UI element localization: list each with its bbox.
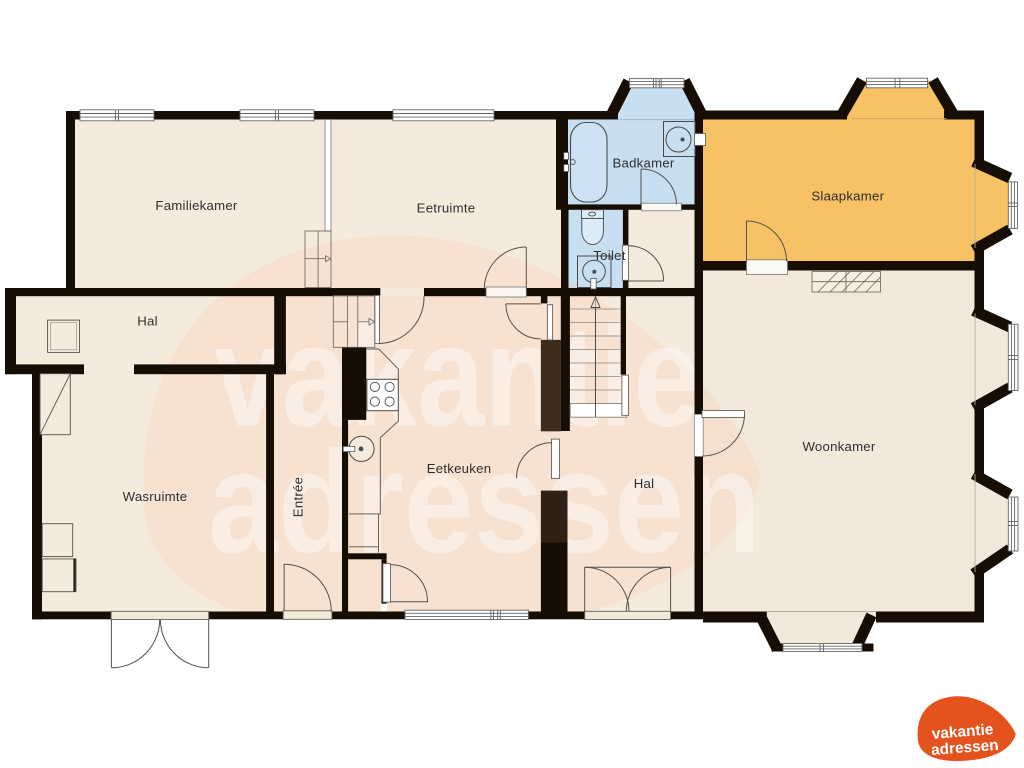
svg-text:Entrée: Entrée [291, 477, 306, 517]
svg-text:Hal: Hal [137, 314, 158, 329]
svg-text:Eetkeuken: Eetkeuken [427, 461, 492, 476]
svg-text:Eetruimte: Eetruimte [417, 201, 476, 216]
svg-text:Wasruimte: Wasruimte [123, 489, 188, 504]
svg-text:Toilet: Toilet [593, 248, 625, 263]
svg-text:Slaapkamer: Slaapkamer [811, 189, 884, 204]
svg-text:Woonkamer: Woonkamer [802, 439, 875, 454]
svg-text:Badkamer: Badkamer [612, 156, 674, 171]
svg-text:Hal: Hal [634, 476, 655, 491]
svg-text:Familiekamer: Familiekamer [155, 198, 237, 213]
